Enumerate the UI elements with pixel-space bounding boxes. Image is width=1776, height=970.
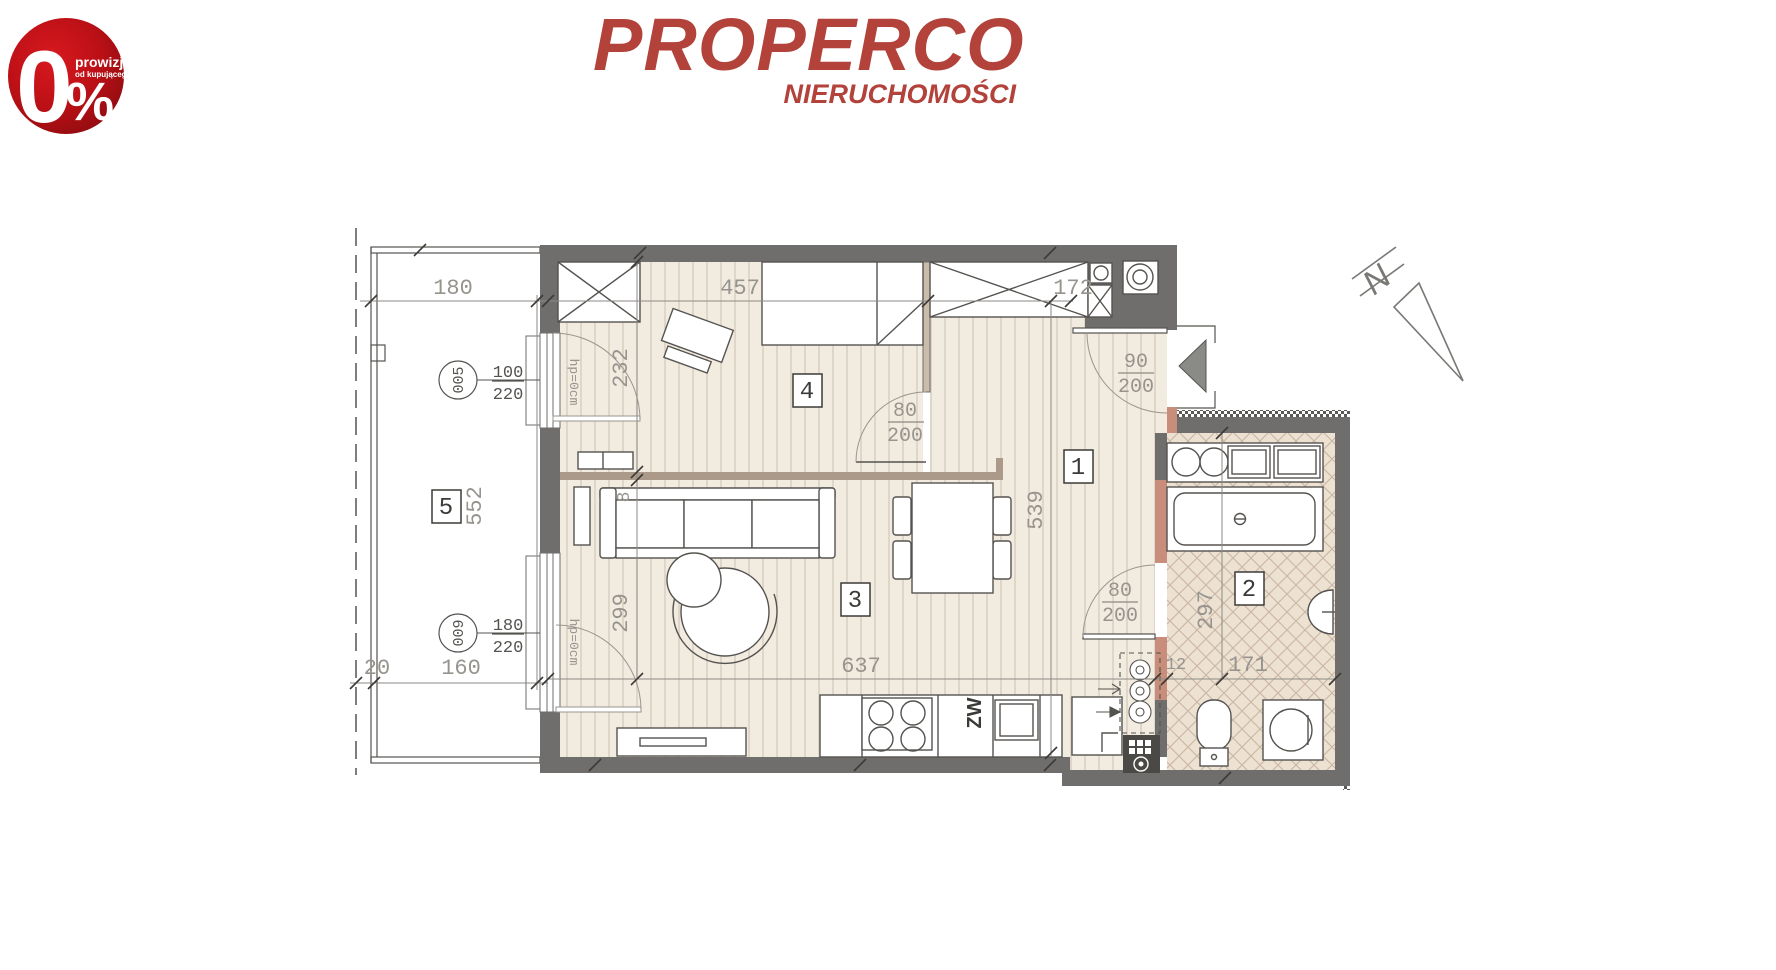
sofa — [600, 488, 835, 558]
wall-bottom-bath — [1062, 770, 1350, 786]
wall-bathroom-top — [1167, 417, 1343, 433]
room-4-bedroom: 4 — [793, 374, 822, 407]
window-005-height: 220 — [493, 386, 524, 405]
svg-text:200: 200 — [887, 425, 923, 448]
dim-entry-width: 172 — [1053, 276, 1093, 301]
hob — [862, 698, 932, 751]
badge-line1: prowizji — [75, 54, 127, 70]
fridge — [1072, 697, 1122, 755]
dim-bath-width: 171 — [1228, 653, 1268, 678]
side-table — [574, 487, 590, 545]
badge-zero: 0 — [16, 30, 73, 144]
window-009-sill: hp=0cm — [566, 619, 581, 666]
north-arrow: N — [1352, 247, 1463, 381]
dim-bath-depth: 297 — [1194, 590, 1219, 630]
floor-plan-page: 0 % prowizji od kupującego PROPERCO NIER… — [0, 0, 1776, 970]
wall-left-upper — [540, 245, 560, 333]
dim-balcony-bottom: 160 — [441, 656, 481, 681]
properco-logo: PROPERCO NIERUCHOMOŚCI — [593, 3, 1025, 109]
dim-bath-wall: 12 — [1166, 656, 1186, 675]
badge-percent: % — [66, 72, 114, 132]
wall-bathroom-right — [1335, 417, 1350, 778]
svg-text:80: 80 — [893, 400, 917, 423]
tv-stand — [617, 728, 746, 756]
svg-text:3: 3 — [848, 588, 862, 615]
kitchen-sink — [995, 700, 1038, 740]
svg-text:80: 80 — [1108, 580, 1132, 603]
room-2-bathroom: 2 — [1235, 572, 1264, 605]
svg-text:4: 4 — [800, 379, 814, 406]
washing-machine — [1263, 700, 1323, 760]
bathtub — [1167, 487, 1323, 551]
boiler — [1123, 261, 1158, 294]
electrical-panel — [1123, 735, 1160, 773]
window-005-code: 005 — [451, 366, 468, 393]
water-heater — [1090, 263, 1112, 283]
dim-balcony-length: 552 — [463, 486, 488, 526]
dim-bedroom-width: 457 — [720, 276, 760, 301]
window-005-width: 100 — [493, 364, 524, 383]
svg-text:90: 90 — [1124, 351, 1148, 374]
dim-living-depth: 299 — [609, 593, 634, 633]
room-1-hall: 1 — [1064, 450, 1093, 483]
logo-subtitle: NIERUCHOMOŚCI — [783, 78, 1016, 109]
toilet — [1197, 700, 1231, 766]
svg-text:1: 1 — [1071, 455, 1085, 482]
badge-line2: od kupującego — [75, 70, 132, 79]
dim-bedroom-depth: 232 — [609, 348, 634, 388]
svg-text:2: 2 — [1242, 577, 1256, 604]
floor-plan: ZW — [350, 228, 1350, 790]
dim-hall-length: 539 — [1024, 490, 1049, 530]
wall-top — [540, 245, 1177, 262]
wall-bedroom-hall — [923, 262, 930, 392]
window-009-width: 180 — [493, 617, 524, 636]
window-009-height: 220 — [493, 639, 524, 658]
room-3-living: 3 — [841, 583, 870, 616]
cold-water-label: ZW — [964, 697, 986, 728]
entrance-arrow-icon — [1179, 340, 1206, 392]
svg-text:5: 5 — [439, 495, 453, 522]
window-005-sill: hp=0cm — [566, 359, 581, 406]
dim-partition: 8 — [615, 492, 635, 503]
wardrobe-bedroom — [558, 262, 640, 322]
dim-living-width: 637 — [841, 654, 881, 679]
room-5-balcony: 5 — [432, 490, 461, 523]
vanity — [1167, 443, 1323, 482]
dim-balcony-offset: 20 — [364, 656, 390, 681]
dim-balcony-width: 180 — [433, 276, 473, 301]
zero-commission-badge: 0 % prowizji od kupującego — [8, 18, 132, 144]
wall-hall-bath-upper — [1155, 433, 1167, 480]
kitchen-counter — [820, 695, 1062, 757]
dresser — [578, 452, 633, 469]
wall-bottom — [540, 757, 1062, 773]
wall-left-mid — [540, 428, 560, 553]
bed — [762, 262, 923, 345]
svg-text:200: 200 — [1118, 376, 1154, 399]
entrance-opening — [1167, 330, 1177, 407]
logo-title: PROPERCO — [593, 3, 1025, 86]
window-009-code: 009 — [451, 619, 468, 646]
svg-text:200: 200 — [1102, 605, 1138, 628]
wall-left-lower — [540, 712, 560, 757]
